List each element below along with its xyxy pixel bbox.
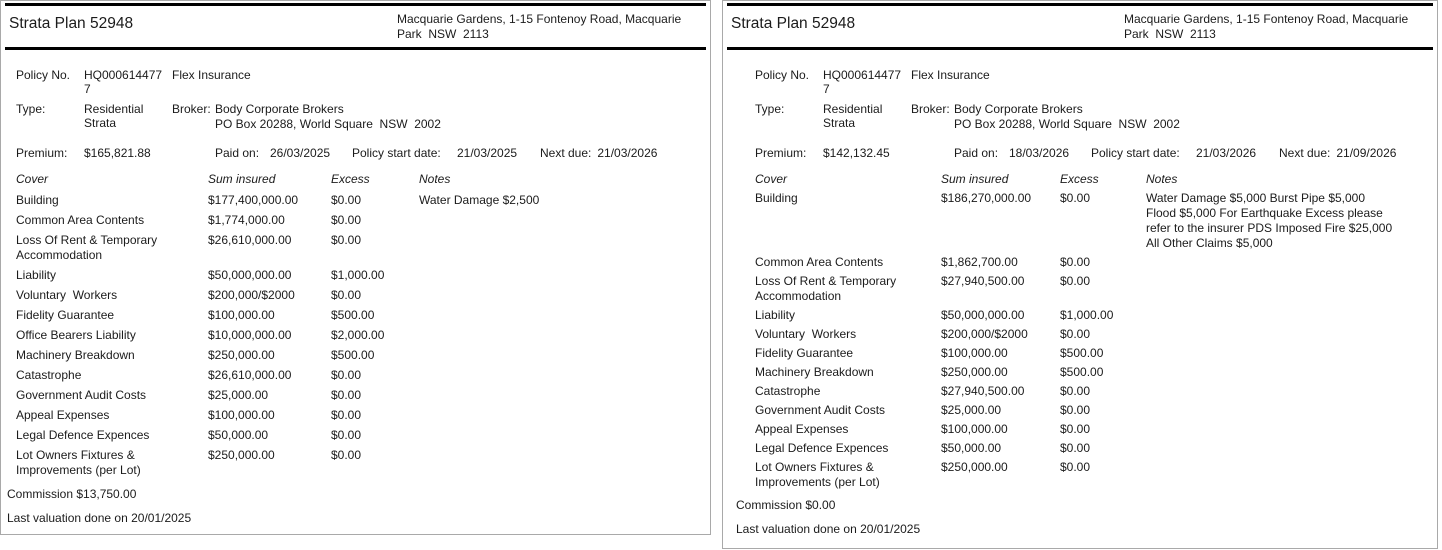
cover-name-cell: Common Area Contents	[16, 213, 208, 228]
notes-cell	[419, 308, 702, 323]
cover-table-row: Voluntary Workers $200,000/$2000 $0.00	[755, 327, 1429, 342]
sum-insured-cell: $100,000.00	[208, 408, 331, 423]
cover-table-row: Fidelity Guarantee $100,000.00 $500.00	[16, 308, 702, 323]
cover-name-cell: Loss Of Rent & Temporary Accommodation	[755, 274, 941, 304]
excess-cell: $0.00	[1060, 403, 1146, 418]
notes-cell	[1146, 346, 1400, 361]
broker-label: Broker:	[911, 102, 954, 132]
type-label: Type:	[755, 102, 823, 132]
excess-cell: $0.00	[1060, 384, 1146, 399]
broker-details: Body Corporate Brokers PO Box 20288, Wor…	[215, 102, 702, 132]
notes-cell	[419, 213, 702, 228]
excess-cell: $0.00	[1060, 191, 1146, 251]
excess-column-header: Excess	[331, 172, 419, 187]
notes-cell	[419, 328, 702, 343]
strata-policy-comparison-page: Strata Plan 52948 Macquarie Gardens, 1-1…	[0, 0, 1442, 550]
sum-insured-cell: $50,000.00	[941, 441, 1060, 456]
excess-cell: $0.00	[331, 288, 419, 303]
paid-on-value: 26/03/2025	[270, 146, 352, 160]
next-due-value: 21/09/2026	[1336, 146, 1396, 160]
cover-table-row: Common Area Contents $1,862,700.00 $0.00	[755, 255, 1429, 270]
cover-table-row: Loss Of Rent & Temporary Accommodation $…	[755, 274, 1429, 304]
excess-cell: $0.00	[331, 213, 419, 228]
broker-block: Broker: Body Corporate Brokers PO Box 20…	[172, 102, 702, 132]
notes-cell	[1146, 327, 1400, 342]
document-footer: Commission $0.00 Last valuation done on …	[723, 494, 1437, 549]
cover-name-cell: Catastrophe	[16, 368, 208, 383]
commission-line: Commission $13,750.00	[7, 487, 710, 501]
cover-name-cell: Voluntary Workers	[16, 288, 208, 303]
sum-insured-cell: $27,940,500.00	[941, 384, 1060, 399]
policy-number-row: Policy No. HQ0006144777 Flex Insurance	[16, 68, 702, 96]
cover-name-cell: Appeal Expenses	[755, 422, 941, 437]
cover-table-row: Government Audit Costs $25,000.00 $0.00	[16, 388, 702, 403]
notes-cell	[1146, 422, 1400, 437]
sum-insured-cell: $250,000.00	[208, 348, 331, 363]
cover-name-cell: Voluntary Workers	[755, 327, 941, 342]
notes-cell	[419, 268, 702, 283]
excess-cell: $0.00	[1060, 422, 1146, 437]
sum-insured-cell: $250,000.00	[941, 365, 1060, 380]
cover-table-row: Lot Owners Fixtures & Improvements (per …	[755, 460, 1429, 490]
cover-name-cell: Legal Defence Expences	[16, 428, 208, 443]
cover-table-row: Legal Defence Expences $50,000.00 $0.00	[755, 441, 1429, 456]
insurance-valuation-line: Insurance valuation $177,400,000.00	[736, 546, 1437, 549]
sum-insured-cell: $200,000/$2000	[208, 288, 331, 303]
cover-table-row: Liability $50,000,000.00 $1,000.00	[755, 308, 1429, 323]
next-due-label: Next due:	[540, 146, 591, 160]
policy-type-row: Type: Residential Strata Broker: Body Co…	[755, 102, 1429, 132]
sum-insured-column-header: Sum insured	[941, 172, 1060, 187]
type-label: Type:	[16, 102, 84, 132]
sum-insured-cell: $26,610,000.00	[208, 368, 331, 383]
next-due-value: 21/03/2026	[597, 146, 657, 160]
excess-cell: $0.00	[331, 368, 419, 383]
cover-table-row: Catastrophe $26,610,000.00 $0.00	[16, 368, 702, 383]
cover-table-row: Liability $50,000,000.00 $1,000.00	[16, 268, 702, 283]
policy-type-row: Type: Residential Strata Broker: Body Co…	[16, 102, 702, 132]
excess-cell: $1,000.00	[1060, 308, 1146, 323]
cover-name-cell: Machinery Breakdown	[16, 348, 208, 363]
notes-cell	[1146, 403, 1400, 418]
excess-cell: $0.00	[331, 448, 419, 478]
sum-insured-cell: $100,000.00	[208, 308, 331, 323]
cover-column-header: Cover	[16, 172, 208, 187]
premium-row: Premium: $165,821.88 Paid on: 26/03/2025…	[16, 146, 702, 160]
plan-title: Strata Plan 52948	[9, 12, 133, 33]
sum-insured-column-header: Sum insured	[208, 172, 331, 187]
cover-name-cell: Liability	[755, 308, 941, 323]
paid-on-value: 18/03/2026	[1009, 146, 1091, 160]
sum-insured-cell: $50,000,000.00	[208, 268, 331, 283]
excess-cell: $0.00	[1060, 255, 1146, 270]
excess-cell: $0.00	[331, 193, 419, 208]
excess-cell: $0.00	[331, 408, 419, 423]
cover-table-row: Building $186,270,000.00 $0.00 Water Dam…	[755, 191, 1429, 251]
policy-details: Policy No. HQ0006144777 Flex Insurance T…	[723, 50, 1437, 490]
sum-insured-cell: $50,000,000.00	[941, 308, 1060, 323]
notes-cell	[419, 408, 702, 423]
notes-cell	[419, 233, 702, 263]
policy-details: Policy No. HQ0006144777 Flex Insurance T…	[1, 50, 710, 478]
insurer-name: Flex Insurance	[911, 68, 1429, 96]
type-value: Residential Strata	[823, 102, 911, 132]
sum-insured-cell: $25,000.00	[208, 388, 331, 403]
cover-table-row: Office Bearers Liability $10,000,000.00 …	[16, 328, 702, 343]
notes-cell	[419, 288, 702, 303]
excess-cell: $0.00	[331, 388, 419, 403]
excess-cell: $0.00	[1060, 327, 1146, 342]
excess-column-header: Excess	[1060, 172, 1146, 187]
notes-cell	[419, 428, 702, 443]
notes-cell	[1146, 441, 1400, 456]
policy-start-label: Policy start date:	[352, 146, 457, 160]
cover-name-cell: Catastrophe	[755, 384, 941, 399]
cover-name-cell: Legal Defence Expences	[755, 441, 941, 456]
cover-name-cell: Appeal Expenses	[16, 408, 208, 423]
cover-table-row: Loss Of Rent & Temporary Accommodation $…	[16, 233, 702, 263]
cover-table-row: Catastrophe $27,940,500.00 $0.00	[755, 384, 1429, 399]
notes-column-header: Notes	[1146, 172, 1400, 187]
excess-cell: $1,000.00	[331, 268, 419, 283]
excess-cell: $0.00	[1060, 460, 1146, 490]
document-header: Strata Plan 52948 Macquarie Gardens, 1-1…	[727, 3, 1433, 50]
premium-value: $165,821.88	[84, 146, 215, 160]
notes-cell	[1146, 308, 1400, 323]
policy-number-row: Policy No. HQ0006144777 Flex Insurance	[755, 68, 1429, 96]
commission-line: Commission $0.00	[736, 498, 1437, 512]
excess-cell: $0.00	[1060, 274, 1146, 304]
cover-name-cell: Government Audit Costs	[755, 403, 941, 418]
cover-table-row: Legal Defence Expences $50,000.00 $0.00	[16, 428, 702, 443]
broker-name: Body Corporate Brokers	[954, 102, 1429, 117]
notes-cell	[419, 388, 702, 403]
policy-no-label: Policy No.	[16, 68, 84, 96]
notes-column-header: Notes	[419, 172, 702, 187]
policy-start-value: 21/03/2026	[1196, 146, 1279, 160]
cover-table-header-row: Cover Sum insured Excess Notes	[755, 172, 1429, 187]
excess-cell: $0.00	[331, 428, 419, 443]
last-valuation-line: Last valuation done on 20/01/2025	[736, 522, 1437, 536]
sum-insured-cell: $200,000/$2000	[941, 327, 1060, 342]
notes-cell	[1146, 365, 1400, 380]
plan-title: Strata Plan 52948	[731, 12, 855, 33]
policy-no-value: HQ0006144777	[84, 68, 164, 96]
cover-name-cell: Liability	[16, 268, 208, 283]
cover-name-cell: Government Audit Costs	[16, 388, 208, 403]
notes-cell	[1146, 255, 1400, 270]
type-value: Residential Strata	[84, 102, 172, 132]
notes-cell: Water Damage $5,000 Burst Pipe $5,000 Fl…	[1146, 191, 1400, 251]
insurer-name: Flex Insurance	[172, 68, 702, 96]
cover-table-header-row: Cover Sum insured Excess Notes	[16, 172, 702, 187]
policy-start-value: 21/03/2025	[457, 146, 540, 160]
last-valuation-line: Last valuation done on 20/01/2025	[7, 511, 710, 525]
sum-insured-cell: $26,610,000.00	[208, 233, 331, 263]
cover-table-row: Fidelity Guarantee $100,000.00 $500.00	[755, 346, 1429, 361]
notes-cell: Water Damage $2,500	[419, 193, 702, 208]
premium-label: Premium:	[755, 146, 823, 160]
excess-cell: $0.00	[331, 233, 419, 263]
policy-start-label: Policy start date:	[1091, 146, 1196, 160]
premium-label: Premium:	[16, 146, 84, 160]
sum-insured-cell: $100,000.00	[941, 422, 1060, 437]
sum-insured-cell: $250,000.00	[941, 460, 1060, 490]
cover-name-cell: Building	[16, 193, 208, 208]
policy-document-panel: Strata Plan 52948 Macquarie Gardens, 1-1…	[0, 0, 711, 535]
excess-cell: $500.00	[331, 348, 419, 363]
cover-name-cell: Common Area Contents	[755, 255, 941, 270]
notes-cell	[419, 348, 702, 363]
notes-cell	[1146, 384, 1400, 399]
property-address: Macquarie Gardens, 1-15 Fontenoy Road, M…	[397, 12, 702, 42]
cover-table-row: Machinery Breakdown $250,000.00 $500.00	[16, 348, 702, 363]
sum-insured-cell: $1,774,000.00	[208, 213, 331, 228]
cover-name-cell: Lot Owners Fixtures & Improvements (per …	[755, 460, 941, 490]
broker-name: Body Corporate Brokers	[215, 102, 702, 117]
premium-value: $142,132.45	[823, 146, 954, 160]
sum-insured-cell: $25,000.00	[941, 403, 1060, 418]
notes-cell	[419, 448, 702, 478]
sum-insured-cell: $186,270,000.00	[941, 191, 1060, 251]
policy-no-label: Policy No.	[755, 68, 823, 96]
sum-insured-cell: $100,000.00	[941, 346, 1060, 361]
notes-cell	[419, 368, 702, 383]
cover-table-row: Appeal Expenses $100,000.00 $0.00	[16, 408, 702, 423]
cover-table-row: Lot Owners Fixtures & Improvements (per …	[16, 448, 702, 478]
cover-name-cell: Loss Of Rent & Temporary Accommodation	[16, 233, 208, 263]
excess-cell: $500.00	[1060, 365, 1146, 380]
cover-table-body: Building $186,270,000.00 $0.00 Water Dam…	[755, 191, 1429, 490]
cover-column-header: Cover	[755, 172, 941, 187]
broker-block: Broker: Body Corporate Brokers PO Box 20…	[911, 102, 1429, 132]
sum-insured-cell: $50,000.00	[208, 428, 331, 443]
paid-on-label: Paid on:	[954, 146, 1009, 160]
sum-insured-cell: $250,000.00	[208, 448, 331, 478]
cover-name-cell: Building	[755, 191, 941, 251]
cover-table-row: Machinery Breakdown $250,000.00 $500.00	[755, 365, 1429, 380]
excess-cell: $2,000.00	[331, 328, 419, 343]
cover-name-cell: Fidelity Guarantee	[16, 308, 208, 323]
document-footer: Commission $13,750.00 Last valuation don…	[1, 483, 710, 535]
cover-table-row: Common Area Contents $1,774,000.00 $0.00	[16, 213, 702, 228]
cover-table-body: Building $177,400,000.00 $0.00 Water Dam…	[16, 193, 702, 478]
notes-cell	[1146, 460, 1400, 490]
broker-address: PO Box 20288, World Square NSW 2002	[215, 117, 702, 132]
notes-cell	[1146, 274, 1400, 304]
cover-name-cell: Office Bearers Liability	[16, 328, 208, 343]
broker-details: Body Corporate Brokers PO Box 20288, Wor…	[954, 102, 1429, 132]
property-address: Macquarie Gardens, 1-15 Fontenoy Road, M…	[1124, 12, 1429, 42]
policy-document-panel: Strata Plan 52948 Macquarie Gardens, 1-1…	[722, 0, 1438, 549]
cover-table-row: Government Audit Costs $25,000.00 $0.00	[755, 403, 1429, 418]
sum-insured-cell: $10,000,000.00	[208, 328, 331, 343]
cover-name-cell: Lot Owners Fixtures & Improvements (per …	[16, 448, 208, 478]
sum-insured-cell: $1,862,700.00	[941, 255, 1060, 270]
next-due-label: Next due:	[1279, 146, 1330, 160]
sum-insured-cell: $27,940,500.00	[941, 274, 1060, 304]
cover-name-cell: Fidelity Guarantee	[755, 346, 941, 361]
cover-name-cell: Machinery Breakdown	[755, 365, 941, 380]
broker-address: PO Box 20288, World Square NSW 2002	[954, 117, 1429, 132]
broker-label: Broker:	[172, 102, 215, 132]
excess-cell: $0.00	[1060, 441, 1146, 456]
excess-cell: $500.00	[331, 308, 419, 323]
policy-no-value: HQ0006144777	[823, 68, 903, 96]
sum-insured-cell: $177,400,000.00	[208, 193, 331, 208]
excess-cell: $500.00	[1060, 346, 1146, 361]
document-header: Strata Plan 52948 Macquarie Gardens, 1-1…	[5, 3, 706, 50]
paid-on-label: Paid on:	[215, 146, 270, 160]
cover-table-row: Building $177,400,000.00 $0.00 Water Dam…	[16, 193, 702, 208]
premium-row: Premium: $142,132.45 Paid on: 18/03/2026…	[755, 146, 1429, 160]
cover-table-row: Appeal Expenses $100,000.00 $0.00	[755, 422, 1429, 437]
cover-table-row: Voluntary Workers $200,000/$2000 $0.00	[16, 288, 702, 303]
